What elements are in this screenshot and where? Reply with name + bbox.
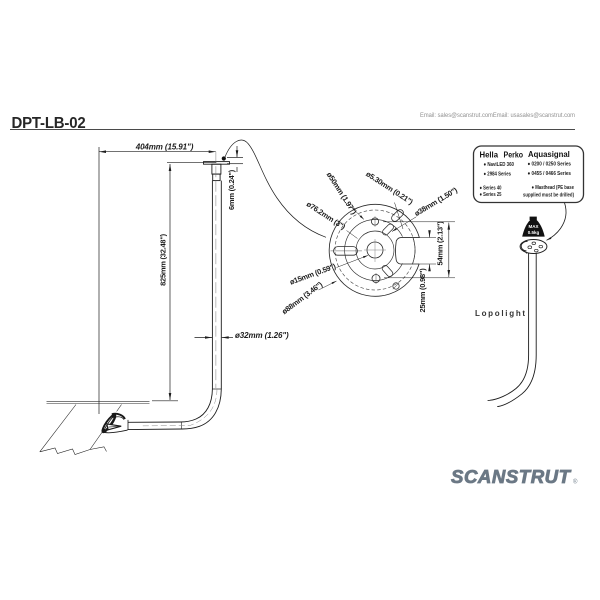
svg-text:Hella: Hella bbox=[480, 150, 499, 160]
svg-text:MAX: MAX bbox=[529, 224, 539, 229]
svg-text:ø5.30mm (0.21"): ø5.30mm (0.21") bbox=[364, 169, 415, 206]
svg-text:825mm (32.48"): 825mm (32.48") bbox=[159, 233, 168, 286]
svg-text:54mm (2.13"): 54mm (2.13") bbox=[436, 221, 445, 266]
svg-text:● Series 40: ● Series 40 bbox=[480, 186, 502, 192]
svg-text:SCANSTRUT: SCANSTRUT bbox=[451, 466, 572, 487]
svg-text:Email: sales@scanstrut.comEmai: Email: sales@scanstrut.comEmail: usasale… bbox=[420, 112, 575, 119]
svg-text:● 2984 Series: ● 2984 Series bbox=[484, 172, 512, 178]
svg-text:● 0455 / 0466 Series: ● 0455 / 0466 Series bbox=[528, 171, 572, 177]
svg-text:Aquasignal: Aquasignal bbox=[528, 149, 570, 159]
svg-text:25mm (0.98"): 25mm (0.98") bbox=[418, 268, 427, 313]
svg-text:ø88mm (3.46"): ø88mm (3.46") bbox=[280, 279, 325, 316]
svg-text:6mm (0.24"): 6mm (0.24") bbox=[227, 169, 236, 210]
svg-text:● Series 25: ● Series 25 bbox=[480, 192, 502, 198]
svg-text:404mm (15.91"): 404mm (15.91") bbox=[135, 142, 194, 151]
svg-text:● 0200 / 0250 Series: ● 0200 / 0250 Series bbox=[528, 162, 572, 168]
svg-text:supplied must be drilled): supplied must be drilled) bbox=[523, 192, 574, 198]
svg-text:ø32mm (1.26"): ø32mm (1.26") bbox=[235, 331, 289, 340]
svg-text:0.5kg: 0.5kg bbox=[528, 230, 540, 235]
svg-text:Lopolight: Lopolight bbox=[475, 309, 525, 318]
svg-text:ø38mm (1.50"): ø38mm (1.50") bbox=[413, 185, 460, 218]
svg-text:ø76.2mm (3"): ø76.2mm (3") bbox=[305, 200, 348, 232]
svg-text:● NaviLED 360: ● NaviLED 360 bbox=[484, 162, 515, 168]
svg-text:Perko: Perko bbox=[504, 150, 524, 160]
svg-text:®: ® bbox=[573, 479, 578, 486]
svg-text:● Masthead (PE base: ● Masthead (PE base bbox=[532, 185, 575, 191]
